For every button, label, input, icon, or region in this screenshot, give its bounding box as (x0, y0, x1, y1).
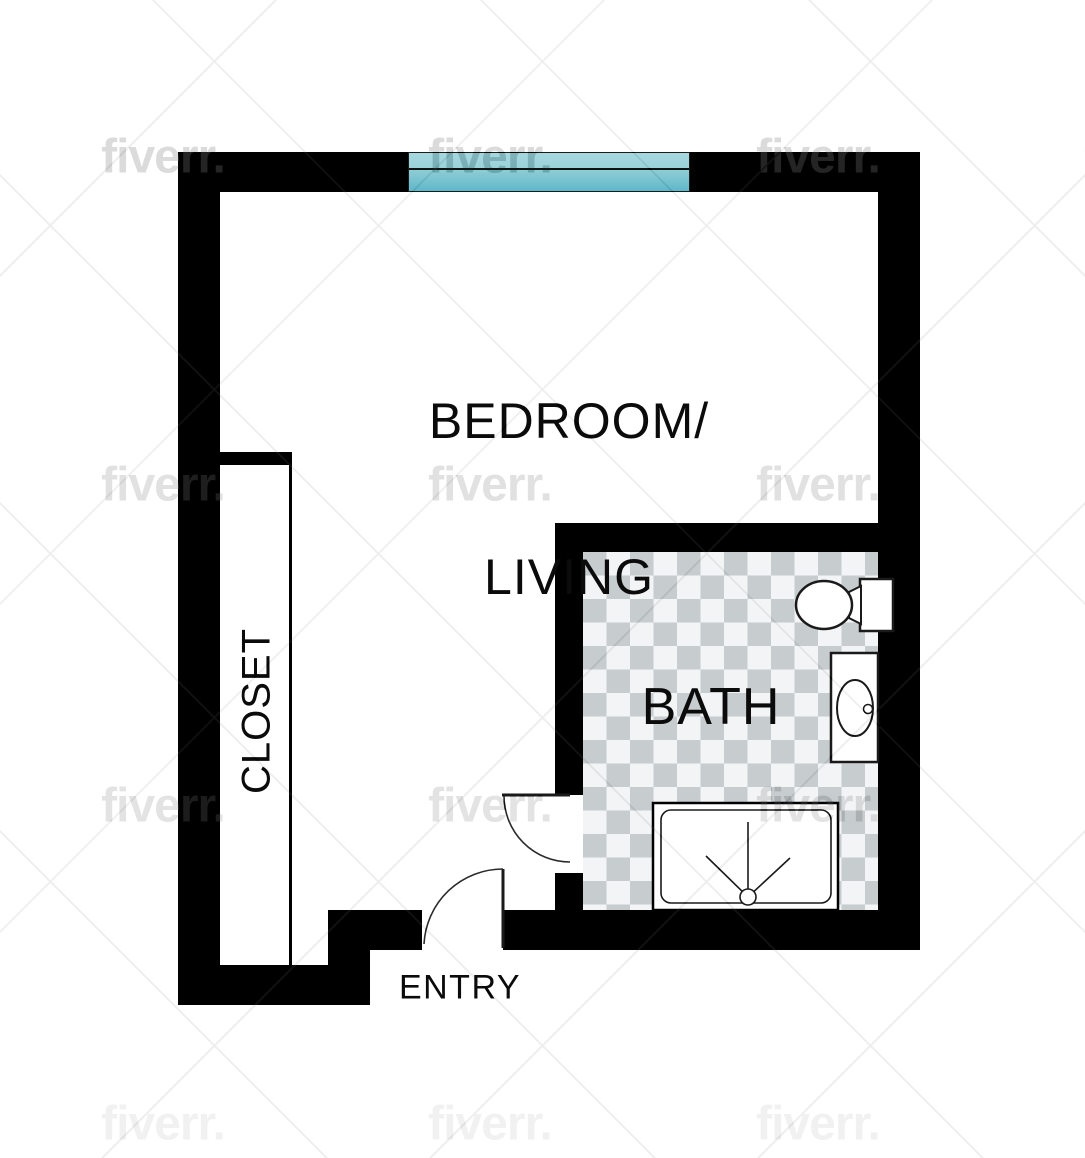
floor-plan: BEDROOM/ LIVING BATH CLOSET ENTRY fiverr… (0, 0, 1085, 1158)
bedroom-living-label: BEDROOM/ LIVING (429, 291, 709, 707)
shower-icon (653, 803, 838, 910)
bath-label: BATH (642, 677, 781, 737)
bedroom-living-label-line1: BEDROOM/ (429, 395, 709, 447)
closet-label: CLOSET (235, 628, 280, 794)
entry-label: ENTRY (399, 969, 521, 1008)
sink-icon (831, 653, 878, 762)
bedroom-living-label-line2: LIVING (429, 551, 709, 603)
entry-door (424, 869, 503, 948)
toilet-icon (796, 579, 893, 631)
bath-door (502, 795, 570, 862)
